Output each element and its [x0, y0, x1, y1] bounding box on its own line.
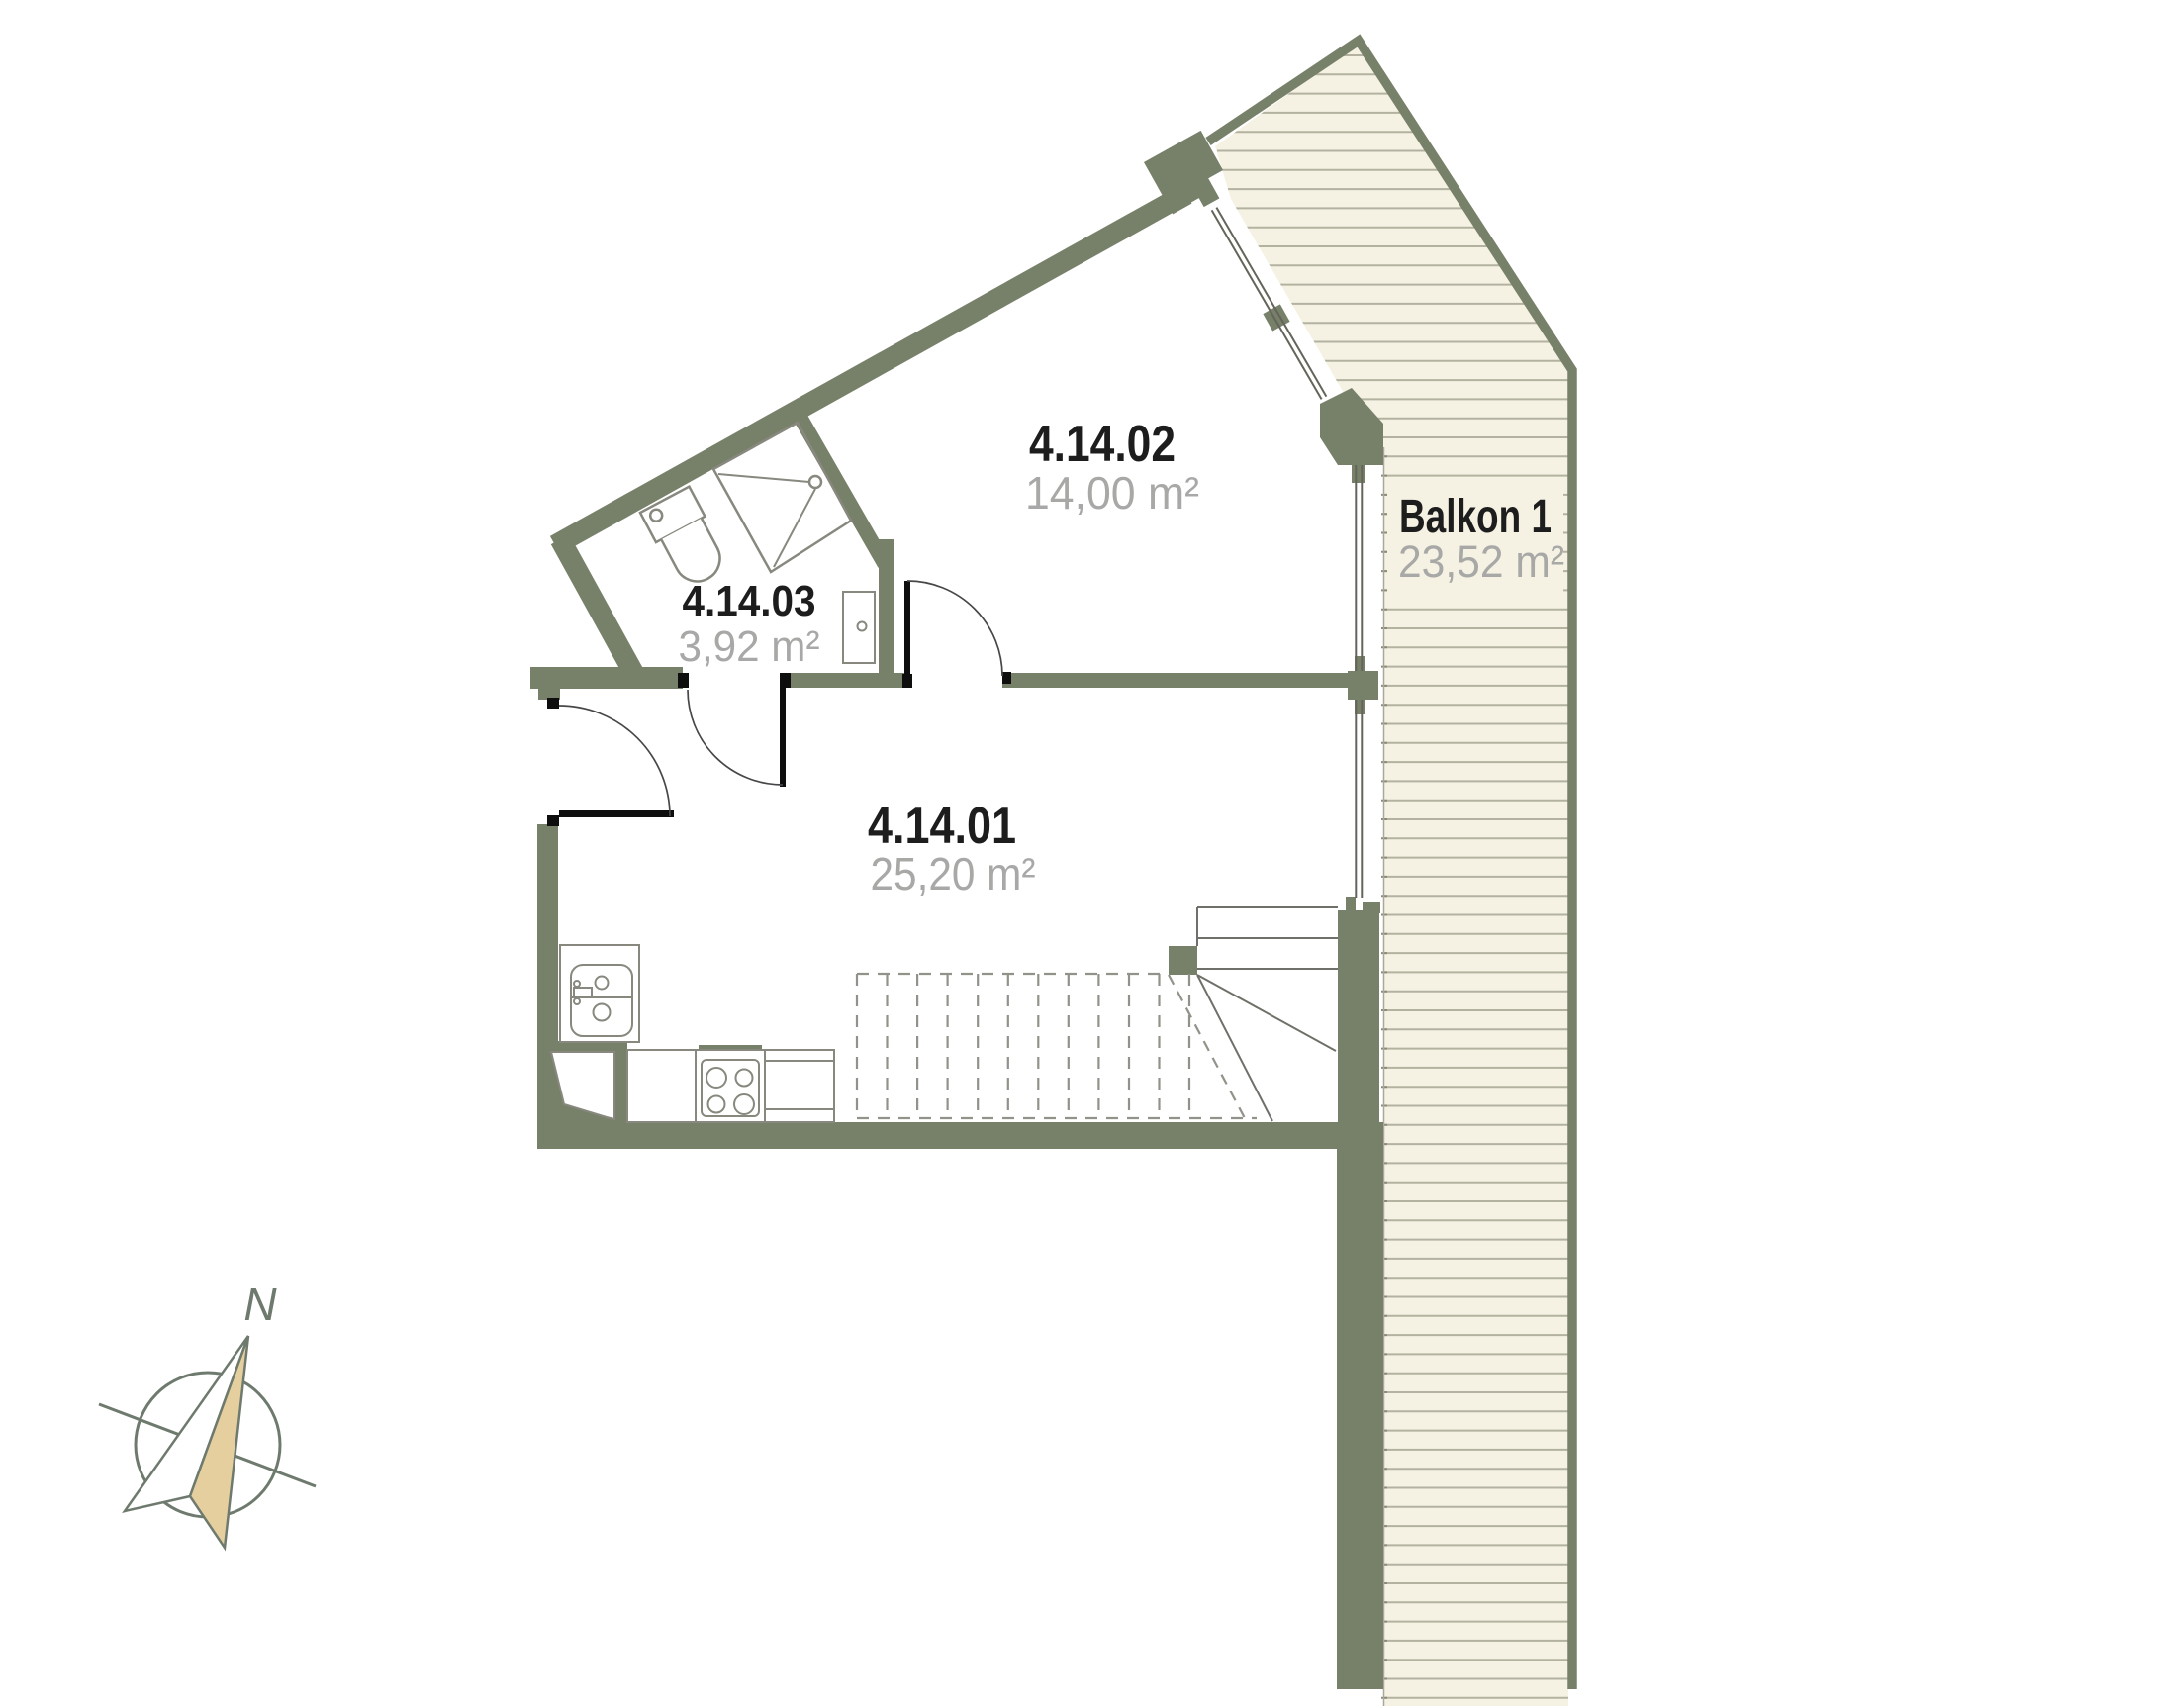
svg-text:4.14.02: 4.14.02	[1029, 416, 1176, 473]
svg-text:23,52 m²: 23,52 m²	[1398, 536, 1564, 587]
svg-text:3,92 m²: 3,92 m²	[679, 622, 820, 671]
svg-text:N: N	[243, 1279, 277, 1330]
svg-text:4.14.01: 4.14.01	[868, 798, 1016, 855]
svg-text:14,00 m²: 14,00 m²	[1025, 467, 1199, 519]
svg-text:25,20 m²: 25,20 m²	[871, 848, 1036, 900]
svg-text:4.14.03: 4.14.03	[683, 577, 816, 625]
